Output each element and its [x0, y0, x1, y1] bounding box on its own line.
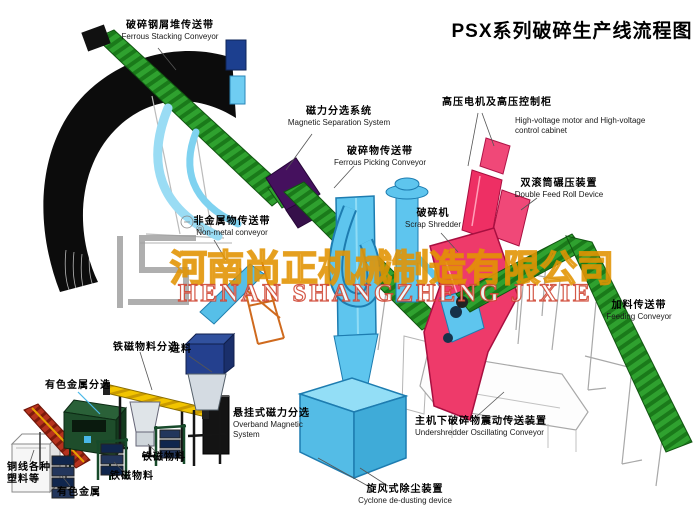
label-zh: 非金属物传送带 — [188, 216, 276, 228]
label-en: Ferrous Stacking Conveyor — [95, 32, 245, 42]
label-fe-material-a: 铁磁物料 — [110, 471, 154, 483]
label-nonferrous-metal: 有色金属 — [57, 487, 101, 499]
label-zh: 破碎钢屑堆传送带 — [95, 20, 245, 32]
label-zh: 铁磁物料 — [110, 471, 154, 483]
label-en: Feeding Conveyor — [598, 312, 680, 322]
label-scrap-shredder: 破碎机 Scrap Shredder — [398, 208, 468, 230]
label-zh: 有色金属分选 — [45, 380, 111, 392]
diagram-title: PSX系列破碎生产线流程图 — [448, 16, 696, 43]
non-metal-conveyor-graphic — [200, 262, 284, 344]
label-magnetic-separation-system: 磁力分选系统 Magnetic Separation System — [278, 106, 400, 128]
label-en: Non-metal conveyor — [188, 228, 276, 238]
label-zh: 进料 — [170, 344, 192, 356]
label-ferrous-stacking-conveyor: 破碎钢屑堆传送带 Ferrous Stacking Conveyor — [95, 20, 245, 42]
label-double-feed-roll: 双滚筒碾压装置 Double Feed Roll Device — [500, 178, 618, 200]
label-hv-cabinet-zh: 高压电机及高压控制柜 — [442, 97, 612, 109]
label-en: Cyclone de-dusting device — [345, 496, 465, 506]
label-zh: 旋风式除尘装置 — [345, 484, 465, 496]
label-zh: 破碎物传送带 — [325, 146, 435, 158]
label-fe-material-b: 铁磁物料 — [142, 452, 186, 464]
label-en: Overband Magnetic System — [233, 420, 325, 439]
label-zh: 高压电机及高压控制柜 — [442, 97, 612, 109]
label-nonferrous-sorting: 有色金属分选 — [45, 380, 111, 392]
label-zh: 悬挂式磁力分选 — [233, 408, 325, 420]
label-en: High-voltage motor and High-voltage cont… — [515, 116, 667, 135]
label-cyclone-dedusting: 旋风式除尘装置 Cyclone de-dusting device — [345, 484, 465, 506]
label-overband-magnet: 悬挂式磁力分选 Overband Magnetic System — [233, 408, 325, 439]
label-feed-in: 进料 — [170, 344, 192, 356]
label-hv-cabinet-en: High-voltage motor and High-voltage cont… — [515, 116, 667, 135]
company-logo-watermark — [120, 236, 196, 308]
label-feeding-conveyor: 加料传送带 Feeding Conveyor — [598, 300, 680, 322]
label-en: Double Feed Roll Device — [500, 190, 618, 200]
label-en: Magnetic Separation System — [278, 118, 400, 128]
label-zh: 磁力分选系统 — [278, 106, 400, 118]
label-zh: 破碎机 — [398, 208, 468, 220]
production-line-diagram — [0, 0, 700, 525]
label-zh: 有色金属 — [57, 487, 101, 499]
label-zh: 铜线各种塑料等 — [7, 462, 53, 486]
label-en: Ferrous Picking Conveyor — [325, 158, 435, 168]
label-en: Undershredder Oscillating Conveyor — [415, 428, 570, 438]
label-zh: 主机下破碎物震动传送装置 — [415, 416, 570, 428]
label-ferrous-picking-conveyor: 破碎物传送带 Ferrous Picking Conveyor — [325, 146, 435, 168]
label-copper-wire-plastics: 铜线各种塑料等 — [7, 462, 53, 486]
label-non-metal-conveyor: 非金属物传送带 Non-metal conveyor — [188, 216, 276, 238]
label-en: Scrap Shredder — [398, 220, 468, 230]
label-zh: 铁磁物料 — [142, 452, 186, 464]
label-undershredder-conveyor: 主机下破碎物震动传送装置 Undershredder Oscillating C… — [415, 416, 570, 438]
label-zh: 加料传送带 — [598, 300, 680, 312]
label-zh: 双滚筒碾压装置 — [500, 178, 618, 190]
